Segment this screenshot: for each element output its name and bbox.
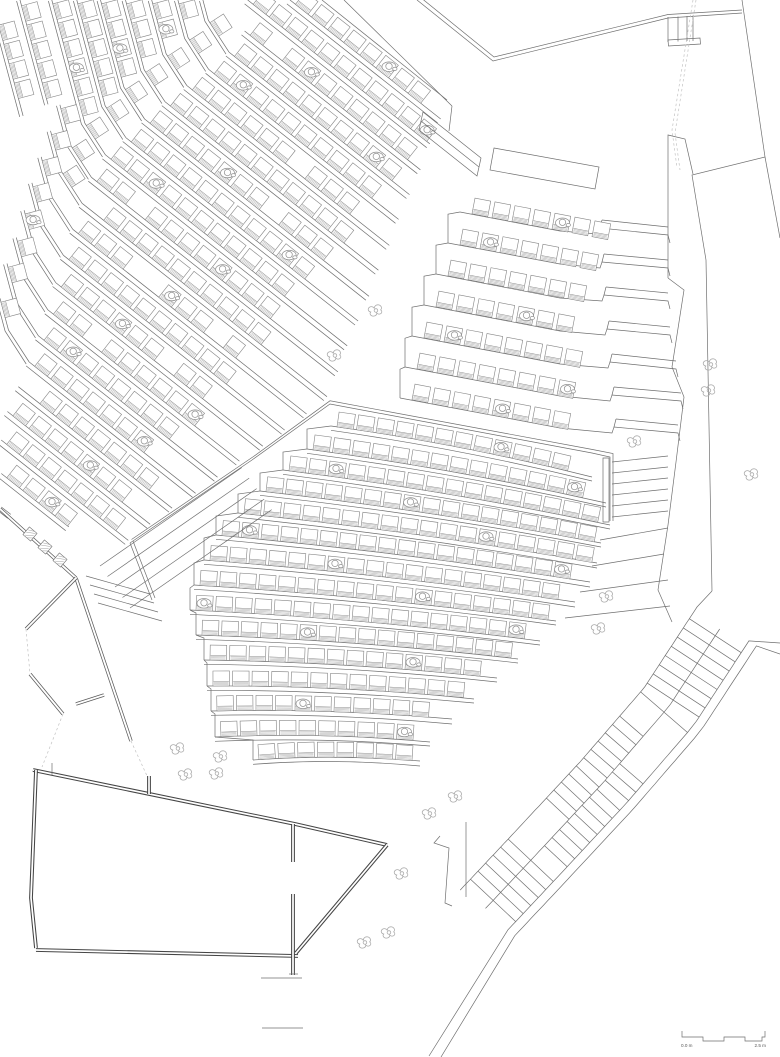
svg-text:0.0 m: 0.0 m [681,1043,693,1048]
svg-text:2.5 m: 2.5 m [755,1043,767,1048]
